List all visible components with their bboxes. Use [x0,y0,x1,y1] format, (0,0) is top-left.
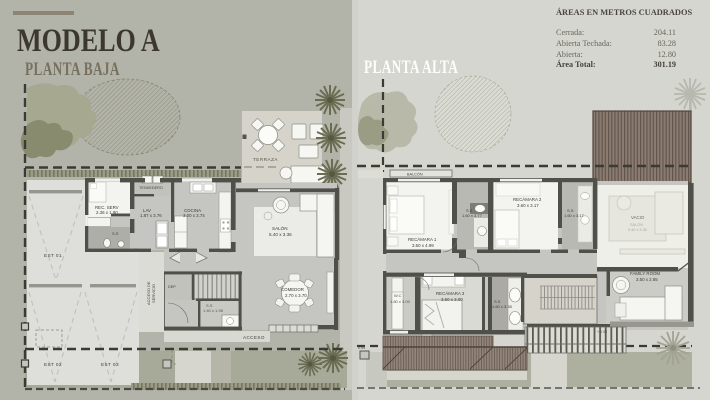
svg-text:5.40 x 3.36: 5.40 x 3.36 [628,228,647,232]
svg-text:3.50 x 2.85: 3.50 x 2.85 [636,277,658,282]
svg-text:3.60 x 3.17: 3.60 x 3.17 [517,203,539,208]
svg-text:SALÓN: SALÓN [272,225,288,231]
svg-text:COMEDOR: COMEDOR [281,287,304,292]
svg-text:RECÁMARA 2: RECÁMARA 2 [513,197,542,202]
svg-text:5.40 x 3.36: 5.40 x 3.36 [269,232,292,237]
svg-text:1.80 x 3.00: 1.80 x 3.00 [390,299,411,304]
svg-text:1.87 x 3.76: 1.87 x 3.76 [140,213,162,218]
svg-text:3.60 x 4.99: 3.60 x 4.99 [412,243,434,248]
svg-text:RECÁMARA 1: RECÁMARA 1 [408,237,437,242]
svg-text:0.94: 0.94 [358,346,365,350]
svg-text:ACCESO: ACCESO [243,335,265,340]
svg-text:3.00 x 3.74: 3.00 x 3.74 [183,213,205,218]
svg-text:DEP: DEP [168,285,176,289]
svg-text:+ 0.93: + 0.93 [597,330,607,334]
svg-text:EST 03: EST 03 [101,362,119,367]
svg-text:2.70 x 3.70: 2.70 x 3.70 [285,293,307,298]
svg-text:EST 01: EST 01 [44,253,62,258]
svg-text:SALÓN: SALÓN [630,222,643,227]
svg-text:W.C: W.C [394,293,402,298]
svg-text:TERRAZA: TERRAZA [253,157,278,162]
svg-text:RECÁMARA 3: RECÁMARA 3 [436,291,465,296]
svg-text:1.60 x 3.77: 1.60 x 3.77 [462,213,483,218]
svg-text:TENDEDERO: TENDEDERO [139,186,163,190]
svg-text:S.S: S.S [112,231,119,236]
svg-text:1.40 x 1.98: 1.40 x 1.98 [203,308,224,313]
svg-text:1.60 x 3.35: 1.60 x 3.35 [492,304,513,309]
svg-text:1.60 x 3.17: 1.60 x 3.17 [564,213,585,218]
svg-text:3.60 x 3.00: 3.60 x 3.00 [441,297,463,302]
svg-text:VACIO: VACIO [631,215,645,220]
svg-text:EST 02: EST 02 [44,362,62,367]
svg-text:BALCÓN: BALCÓN [407,171,423,176]
svg-text:FAMILY ROOM: FAMILY ROOM [630,271,660,276]
svg-text:SERVICIO: SERVICIO [151,284,156,303]
